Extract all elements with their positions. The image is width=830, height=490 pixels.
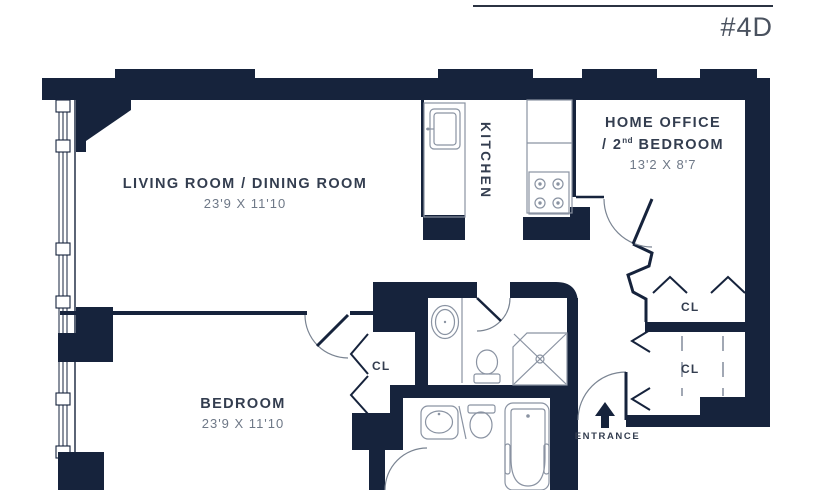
window-strip (56, 95, 88, 490)
home-office-name-line2: / 2nd BEDROOM (578, 132, 748, 154)
toilet (474, 350, 500, 383)
bathroom-sink-2 (421, 406, 458, 439)
floor-plan: #4D (0, 0, 830, 490)
bedroom-label: BEDROOM 23'9 X 11'10 (123, 395, 363, 433)
lower-bathroom-door (385, 448, 427, 490)
home-office-name-line1: HOME OFFICE (578, 114, 748, 132)
kitchen-sink (426, 109, 460, 149)
shower-stall (513, 333, 567, 385)
hall-closet-label: CL (681, 362, 699, 376)
kitchen-label: KITCHEN (478, 122, 493, 200)
bedroom-closet-label: CL (372, 359, 390, 373)
entrance-arrow-icon (595, 402, 615, 428)
entrance-label: ENTRANCE (560, 431, 655, 442)
office-closet-bifold-doors (653, 277, 745, 293)
living-room-label: LIVING ROOM / DINING ROOM 23'9 X 11'10 (95, 175, 395, 213)
bedroom-name: BEDROOM (123, 395, 363, 413)
living-room-dimensions: 23'9 X 11'10 (95, 195, 395, 213)
home-office-door (604, 199, 652, 247)
upper-bathroom (432, 298, 568, 385)
lower-bathroom (421, 403, 549, 490)
bedroom-dimensions: 23'9 X 11'10 (123, 415, 363, 433)
bathroom-sink (432, 306, 459, 339)
toilet-2 (468, 405, 495, 438)
bathtub (505, 403, 549, 490)
stove (529, 172, 569, 214)
home-office-dimensions: 13'2 X 8'7 (578, 156, 748, 174)
bathroom-door (477, 298, 510, 331)
living-room-name: LIVING ROOM / DINING ROOM (95, 175, 395, 193)
bedroom-door (305, 315, 348, 358)
kitchen-counter-right (527, 100, 572, 213)
office-closet-label: CL (681, 300, 699, 314)
home-office-label: HOME OFFICE / 2nd BEDROOM 13'2 X 8'7 (578, 114, 748, 174)
